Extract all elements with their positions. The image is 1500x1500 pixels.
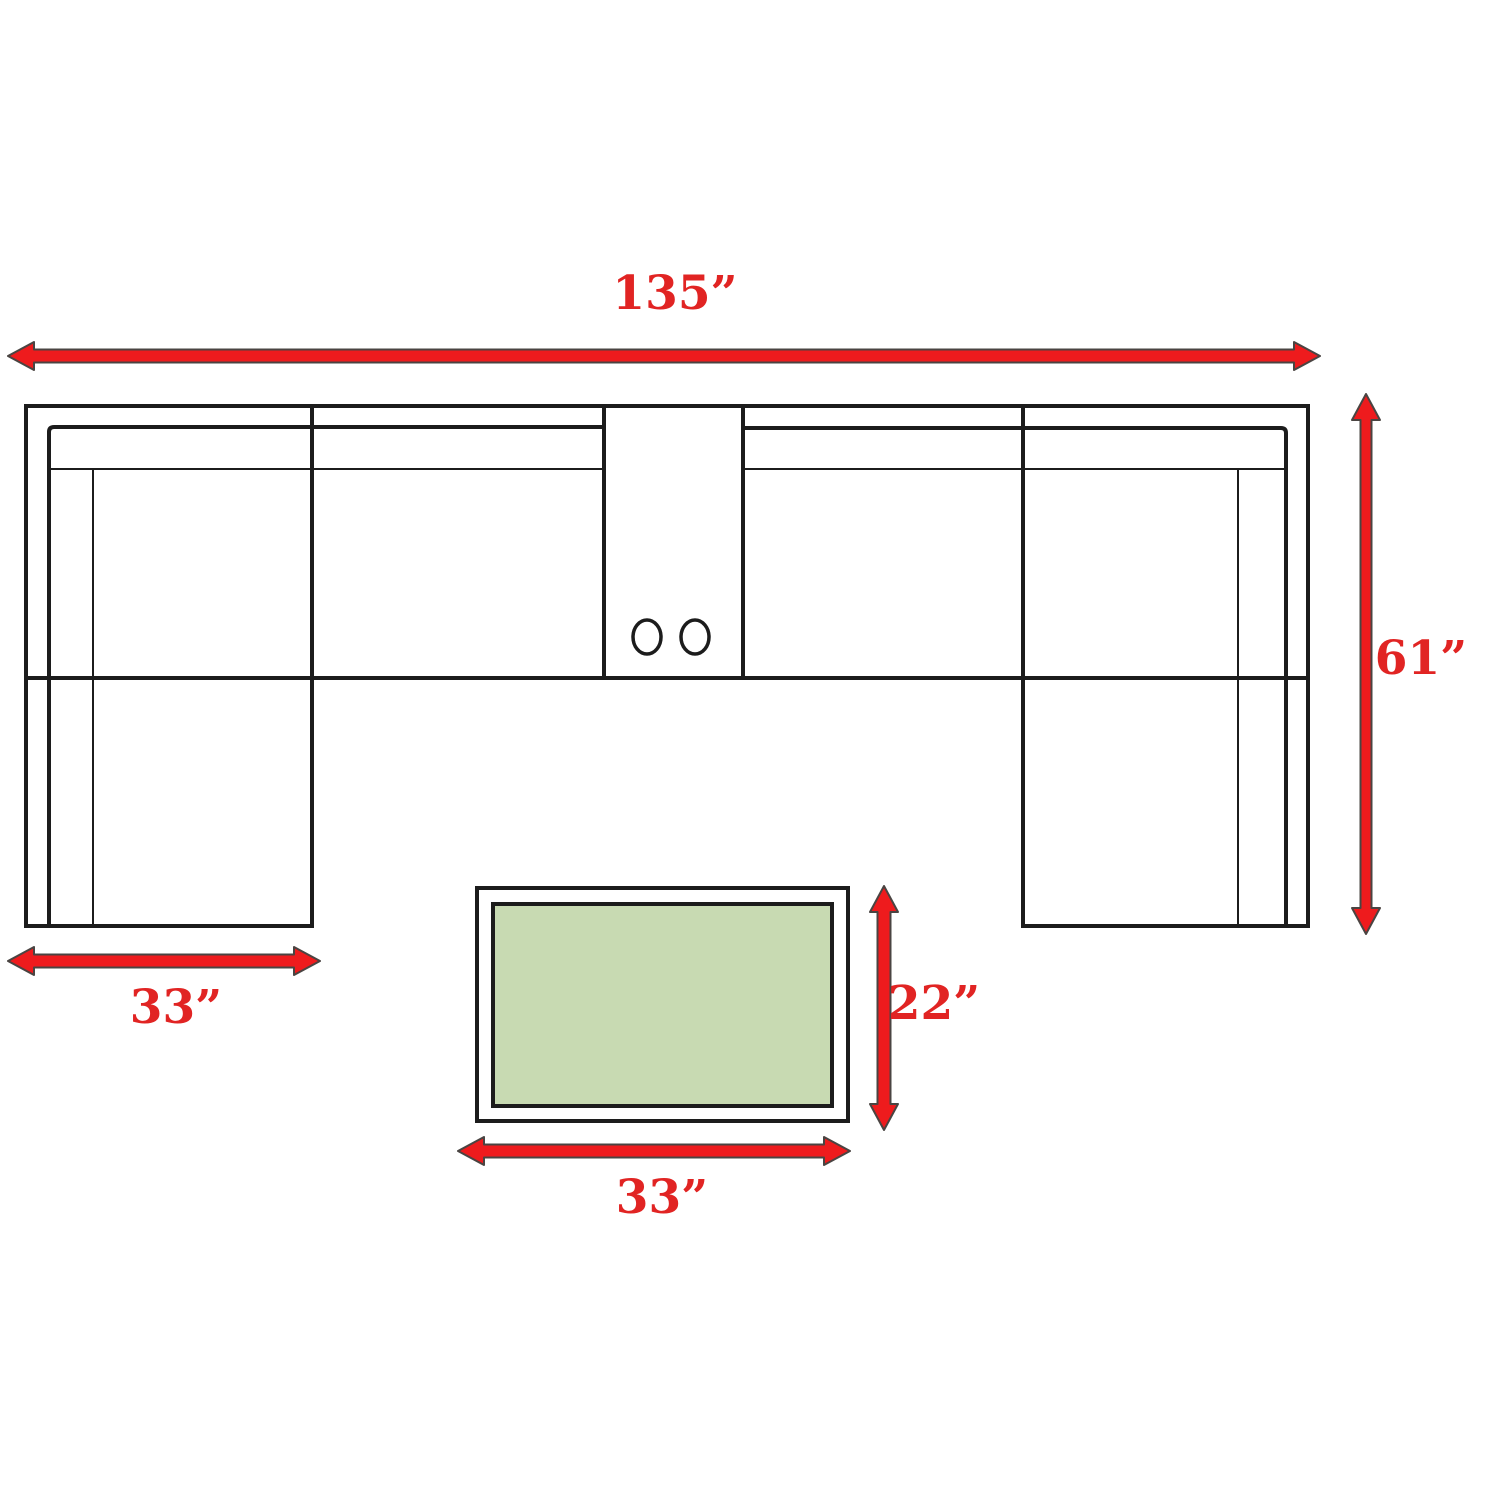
overall-depth-label: 61” (1375, 631, 1467, 686)
overall-width-arrow (8, 342, 1320, 370)
sofa-outline (26, 406, 1308, 926)
chaise-width-arrow (8, 947, 320, 975)
sectional-dimension-diagram: 135” 61” 33” 22” 33” (0, 0, 1500, 1500)
table-depth-label: 22” (888, 976, 980, 1031)
cup-holder-right-icon (681, 620, 709, 654)
coffee-table-top (493, 904, 832, 1106)
chaise-width-label: 33” (130, 980, 222, 1035)
table-width-arrow (458, 1137, 850, 1165)
table-width-label: 33” (616, 1170, 708, 1225)
sofa-outer-frame (26, 406, 1308, 926)
sofa-dimension-svg: 135” 61” 33” 22” 33” (0, 0, 1500, 1500)
overall-width-label: 135” (612, 266, 737, 321)
coffee-table (477, 888, 848, 1121)
cup-holder-left-icon (633, 620, 661, 654)
sofa-backrest-lines (49, 469, 1286, 926)
